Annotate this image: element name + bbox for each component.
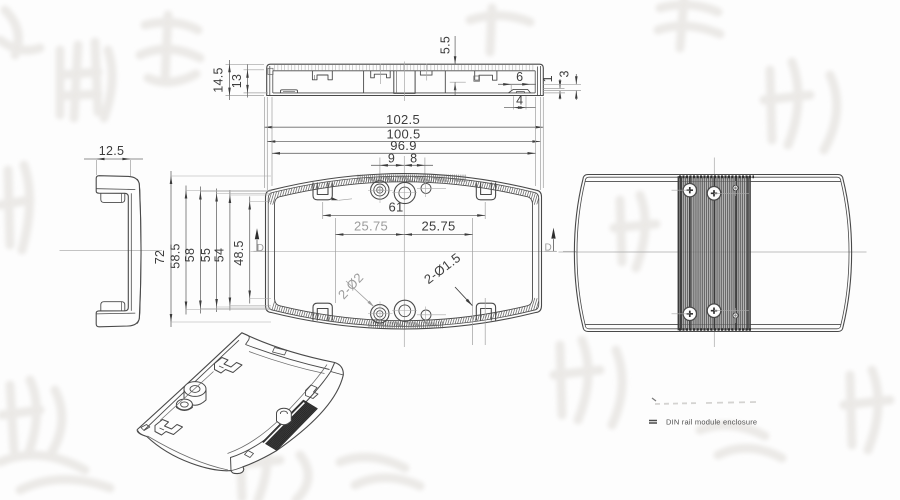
svg-text:3: 3 (558, 70, 572, 77)
svg-text:25.75: 25.75 (421, 219, 455, 234)
svg-text:58.5: 58.5 (169, 243, 183, 269)
svg-text:5.5: 5.5 (439, 36, 453, 54)
svg-text:9: 9 (388, 151, 395, 165)
svg-text:8: 8 (410, 151, 417, 165)
svg-text:14.5: 14.5 (211, 67, 225, 93)
svg-text:1: 1 (541, 75, 555, 82)
svg-text:72: 72 (153, 250, 167, 265)
svg-text:48.5: 48.5 (232, 240, 246, 266)
svg-text:6: 6 (516, 70, 523, 84)
svg-text:54: 54 (212, 248, 226, 263)
svg-text:D: D (545, 243, 553, 254)
svg-text:58: 58 (183, 248, 197, 263)
svg-text:DIN rail module enclosure: DIN rail module enclosure (666, 418, 757, 427)
svg-text:55: 55 (199, 248, 213, 263)
svg-text:25.75: 25.75 (354, 219, 388, 234)
svg-text:13: 13 (230, 74, 244, 89)
svg-text:102.5: 102.5 (386, 112, 420, 127)
svg-text:61: 61 (388, 200, 403, 215)
svg-text:D: D (257, 243, 265, 254)
svg-text:4: 4 (516, 94, 523, 108)
svg-text:12.5: 12.5 (99, 144, 125, 158)
